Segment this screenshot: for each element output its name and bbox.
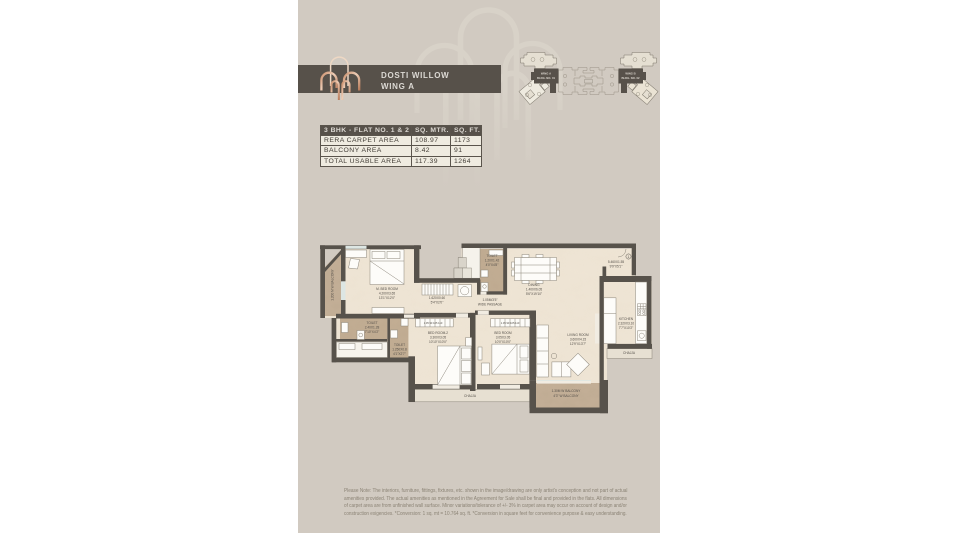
- svg-text:WIDE PASSAGE: WIDE PASSAGE: [478, 303, 502, 307]
- svg-text:3.05X3.05: 3.05X3.05: [496, 336, 511, 340]
- svg-text:M. BED ROOM: M. BED ROOM: [376, 287, 398, 291]
- svg-text:BLDG. NO. 01: BLDG. NO. 01: [537, 76, 556, 80]
- svg-text:1.05 90 105 110: 1.05 90 105 110: [424, 321, 443, 325]
- svg-text:1.05M/3'5": 1.05M/3'5": [482, 298, 497, 302]
- svg-text:KITCHEN: KITCHEN: [619, 317, 634, 321]
- svg-text:2.40X1.28: 2.40X1.28: [365, 326, 380, 330]
- svg-text:7'10"X4'2": 7'10"X4'2": [365, 330, 379, 334]
- svg-text:CHAJJA: CHAJJA: [623, 351, 636, 355]
- svg-text:1.250X0.8: 1.250X0.8: [392, 348, 407, 352]
- svg-text:1: 1: [628, 255, 630, 259]
- svg-text:TOILET: TOILET: [366, 321, 377, 325]
- svg-text:1.200 M W BALCONY: 1.200 M W BALCONY: [331, 268, 335, 300]
- svg-text:7'7"X10'2": 7'7"X10'2": [619, 326, 633, 330]
- svg-text:3.300X3.05: 3.300X3.05: [430, 336, 447, 340]
- svg-text:4'0"X4'8": 4'0"X4'8": [486, 263, 499, 267]
- svg-text:TOILET: TOILET: [394, 343, 405, 347]
- svg-text:1.620X0.60: 1.620X0.60: [429, 296, 446, 300]
- svg-text:1.400X6.05: 1.400X6.05: [526, 288, 543, 292]
- svg-text:4'3" W BALCONY: 4'3" W BALCONY: [553, 394, 579, 398]
- svg-text:WING B: WING B: [625, 72, 635, 76]
- svg-text:5'4"X2'0": 5'4"X2'0": [431, 301, 444, 305]
- svg-text:12'9"X13'7": 12'9"X13'7": [570, 342, 586, 346]
- svg-text:TOILET: TOILET: [486, 254, 497, 258]
- svg-text:4.200X3.65: 4.200X3.65: [379, 292, 396, 296]
- svg-text:13'1"X12'0": 13'1"X12'0": [379, 296, 395, 300]
- svg-text:4'1"X2'7": 4'1"X2'7": [393, 352, 406, 356]
- svg-text:BLDG. NO. 02: BLDG. NO. 02: [621, 76, 640, 80]
- svg-text:LIVING ROOM: LIVING ROOM: [567, 333, 589, 337]
- svg-text:10'0"X10'0": 10'0"X10'0": [495, 340, 511, 344]
- svg-text:BED ROOM: BED ROOM: [494, 331, 512, 335]
- svg-text:10'10"X10'0": 10'10"X10'0": [429, 340, 447, 344]
- svg-text:CHAJJA: CHAJJA: [464, 394, 477, 398]
- svg-text:DINING: DINING: [528, 283, 540, 287]
- svg-text:1.05 90 105 110: 1.05 90 105 110: [501, 321, 520, 325]
- svg-text:WING A: WING A: [541, 72, 551, 76]
- svg-text:BED ROOM-2: BED ROOM-2: [428, 331, 448, 335]
- svg-text:1.20X1.42: 1.20X1.42: [485, 259, 500, 263]
- svg-text:9'9"X5'1": 9'9"X5'1": [610, 265, 623, 269]
- svg-text:1.30M W BALCONY: 1.30M W BALCONY: [552, 389, 582, 393]
- svg-text:5.460X1.55: 5.460X1.55: [608, 260, 625, 264]
- svg-text:5'6"X19'10": 5'6"X19'10": [526, 292, 542, 296]
- svg-text:2.320X3.10: 2.320X3.10: [618, 322, 635, 326]
- svg-text:3.600X4.15: 3.600X4.15: [570, 338, 587, 342]
